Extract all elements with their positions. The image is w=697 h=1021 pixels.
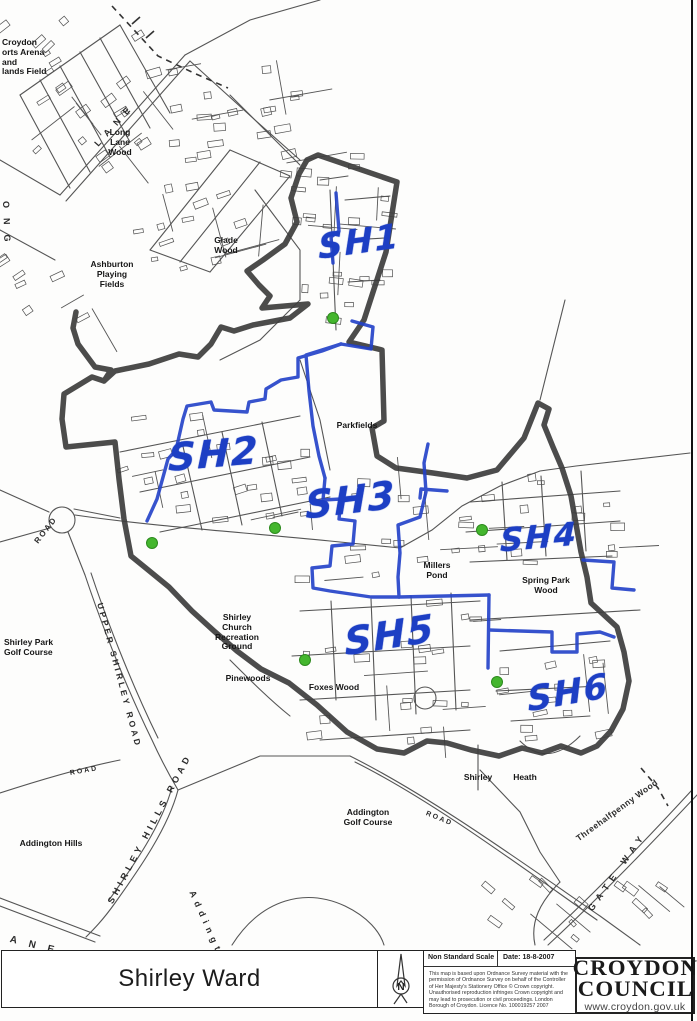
place-label-foxes-wood: Foxes Wood (309, 683, 359, 693)
place-label-croydon-arena: Croydon orts Arena and lands Field (2, 38, 46, 77)
place-label-shirley-church-recreation-ground: Shirley Church Recreation Ground (215, 613, 259, 652)
north-arrow-box: N (377, 950, 424, 1008)
road-label-long: ONG (1, 201, 13, 252)
scanned-map-page: Croydon orts Arena and lands FieldLong L… (0, 0, 697, 1021)
scale-date-box: Non Standard Scale Date: 18-8-2007 This … (423, 950, 576, 1014)
place-label-millers-pond: Millers Pond (424, 561, 451, 581)
svg-text:N: N (397, 982, 404, 993)
green-marker (147, 538, 158, 549)
green-marker (477, 525, 488, 536)
green-marker (328, 313, 339, 324)
place-label-shirley-park-golf-course: Shirley Park Golf Course (4, 638, 53, 658)
district-label-sh2: SH2 (168, 428, 260, 480)
copyright-text: This map is based upon Ordnance Survey m… (424, 967, 575, 1010)
council-website: www.croydon.gov.uk (585, 1001, 686, 1013)
green-marker (492, 677, 503, 688)
green-marker (300, 655, 311, 666)
scale-label: Non Standard Scale (424, 951, 498, 966)
place-label-addington-golf-course: Addington Golf Course (344, 808, 393, 828)
place-label-glade-wood: Glade Wood (214, 236, 238, 256)
place-label-addington-hills: Addington Hills (20, 839, 83, 849)
map-title-box: Shirley Ward (1, 950, 378, 1008)
place-label-heath: Heath (513, 773, 537, 783)
date-label: Date: 18-8-2007 (498, 951, 575, 966)
north-arrow-icon: N (384, 953, 418, 1005)
croydon-council-logo: CROYDON COUNCIL www.croydon.gov.uk (575, 957, 695, 1014)
district-label-sh4: SH4 (500, 514, 578, 559)
place-label-shirley: Shirley (464, 773, 492, 783)
place-label-spring-park-wood: Spring Park Wood (522, 576, 570, 596)
logo-council: COUNCIL (577, 979, 692, 1000)
place-label-pinewoods: Pinewoods (226, 674, 271, 684)
place-label-ashburton-playing-fields: Ashburton Playing Fields (91, 260, 134, 289)
place-label-parkfields: Parkfields (337, 421, 378, 431)
map-title: Shirley Ward (118, 965, 260, 993)
scan-edge-line (691, 0, 693, 1021)
green-marker (270, 523, 281, 534)
